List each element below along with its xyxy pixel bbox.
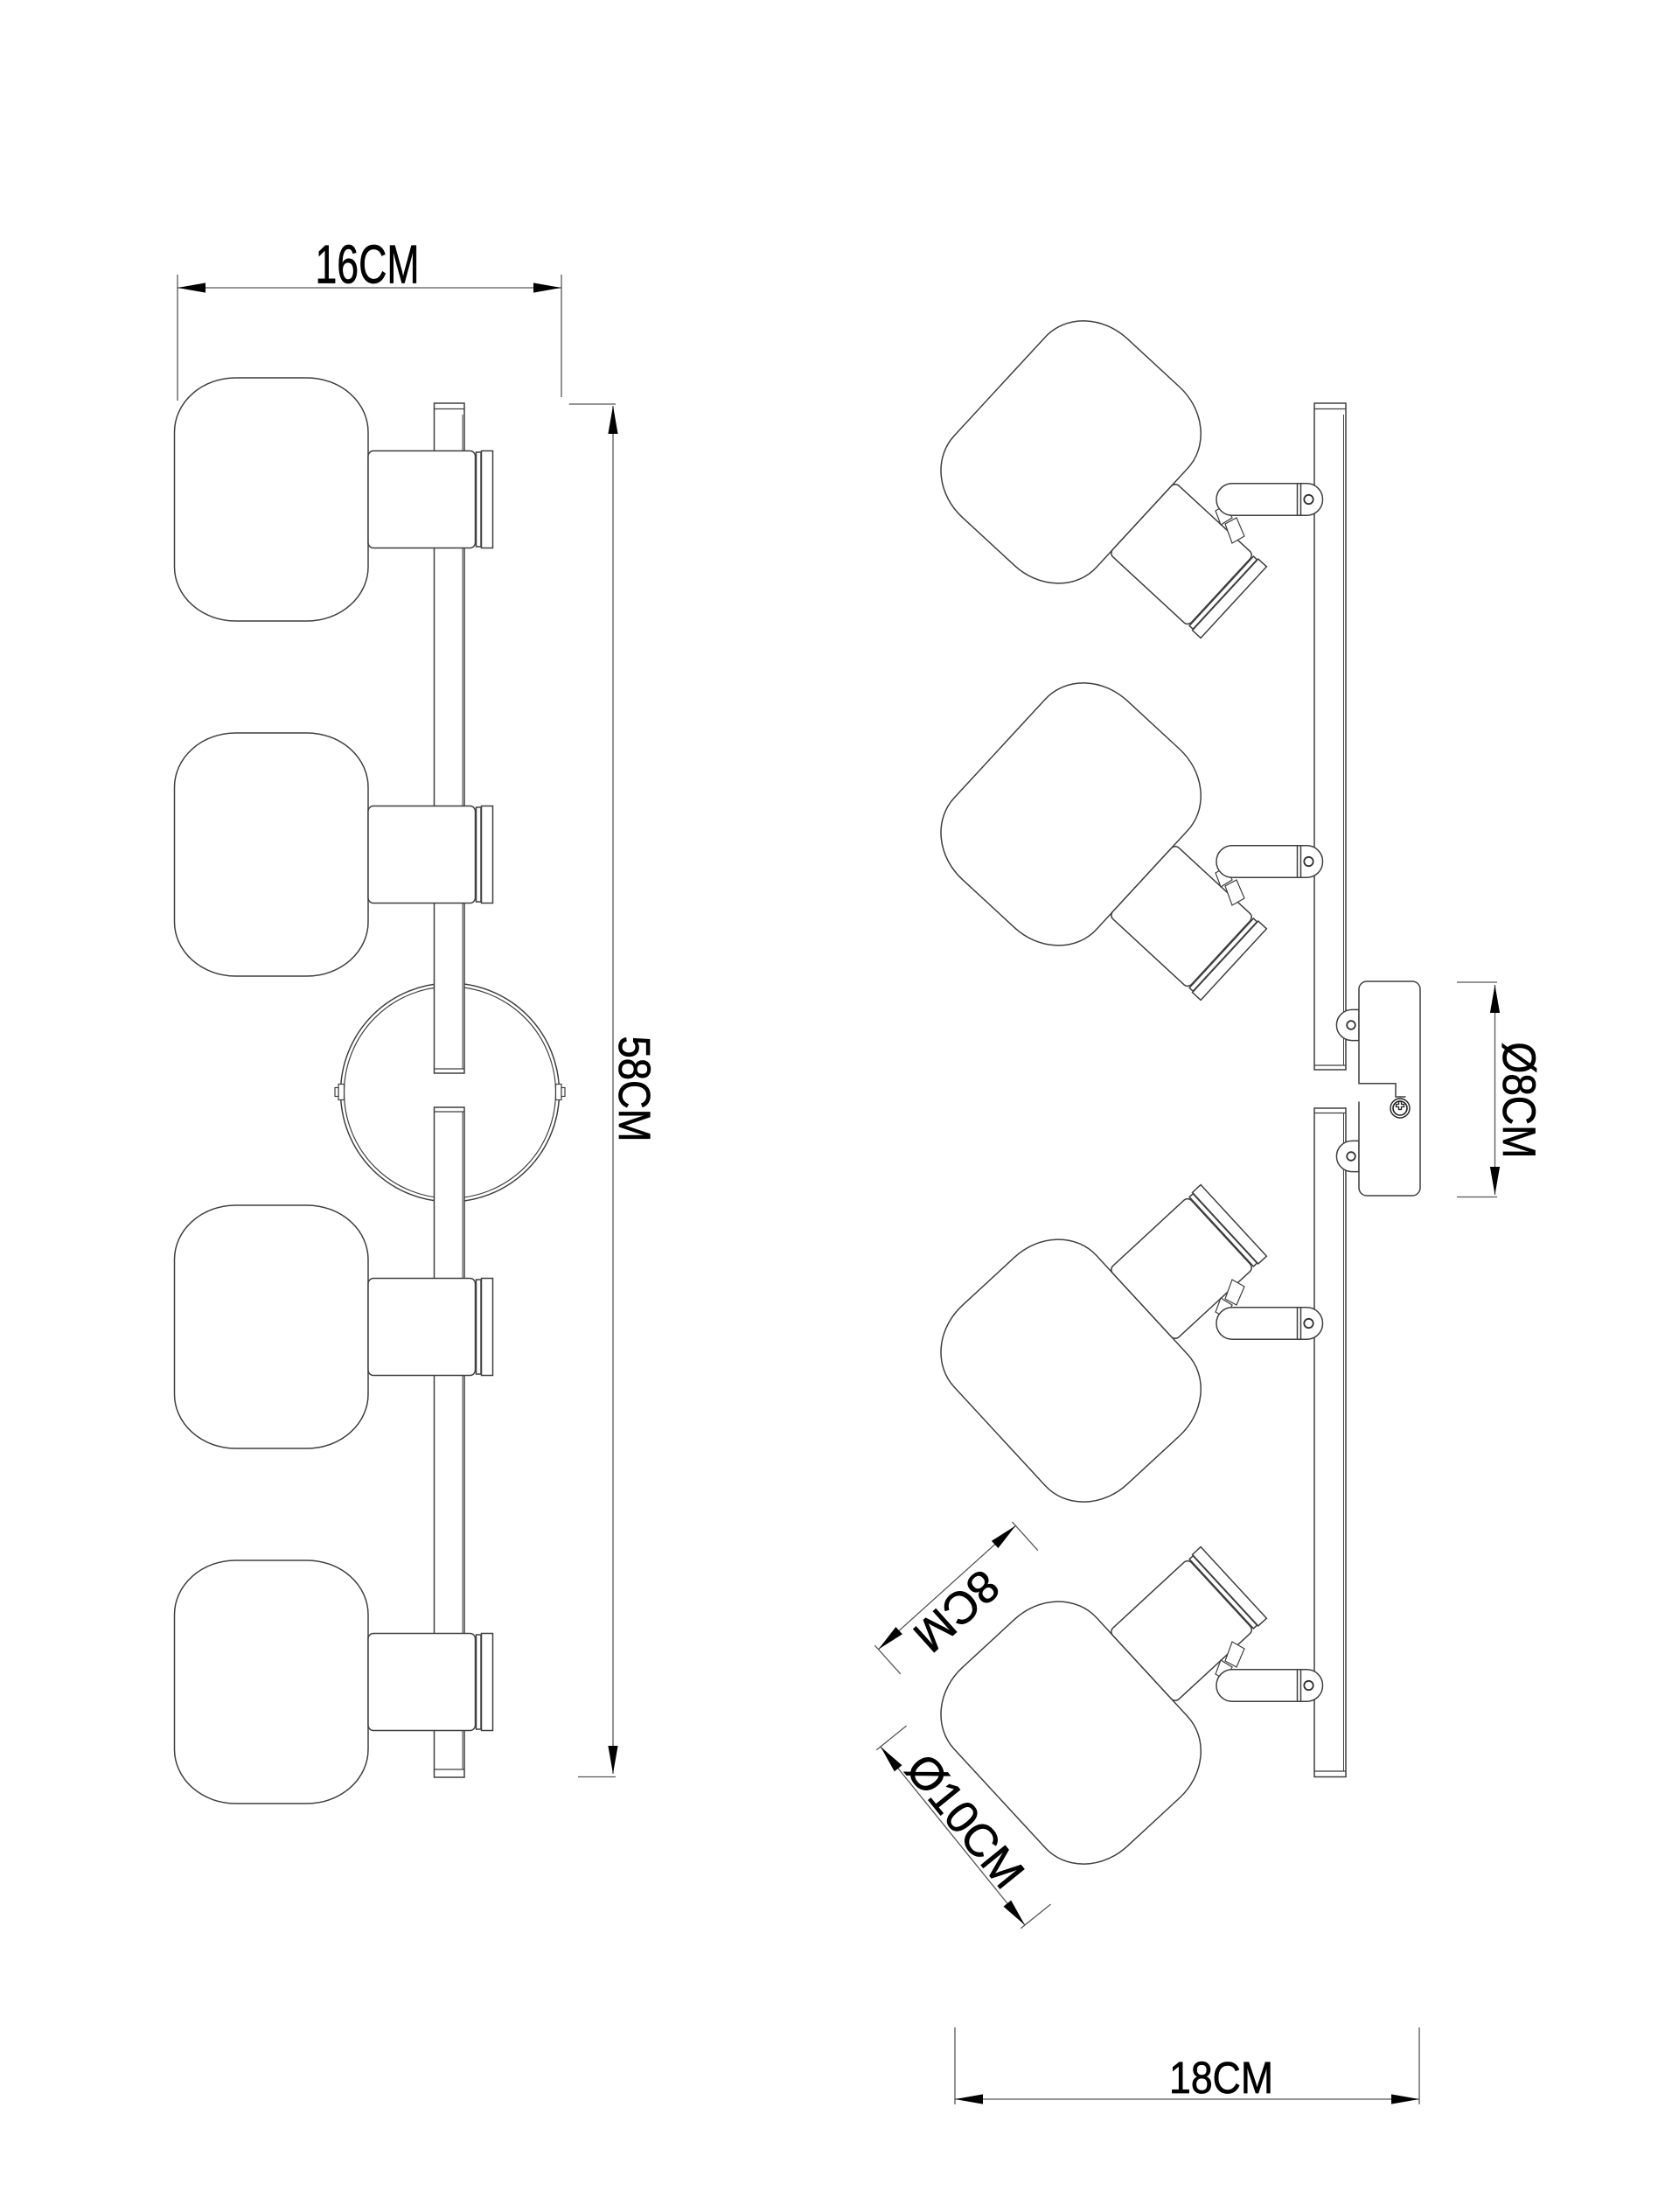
svg-text:18CM: 18CM [1169,2054,1273,2103]
svg-text:16CM: 16CM [315,234,419,295]
svg-text:58CM: 58CM [609,1036,658,1141]
svg-text:Ø8CM: Ø8CM [1493,1042,1545,1158]
